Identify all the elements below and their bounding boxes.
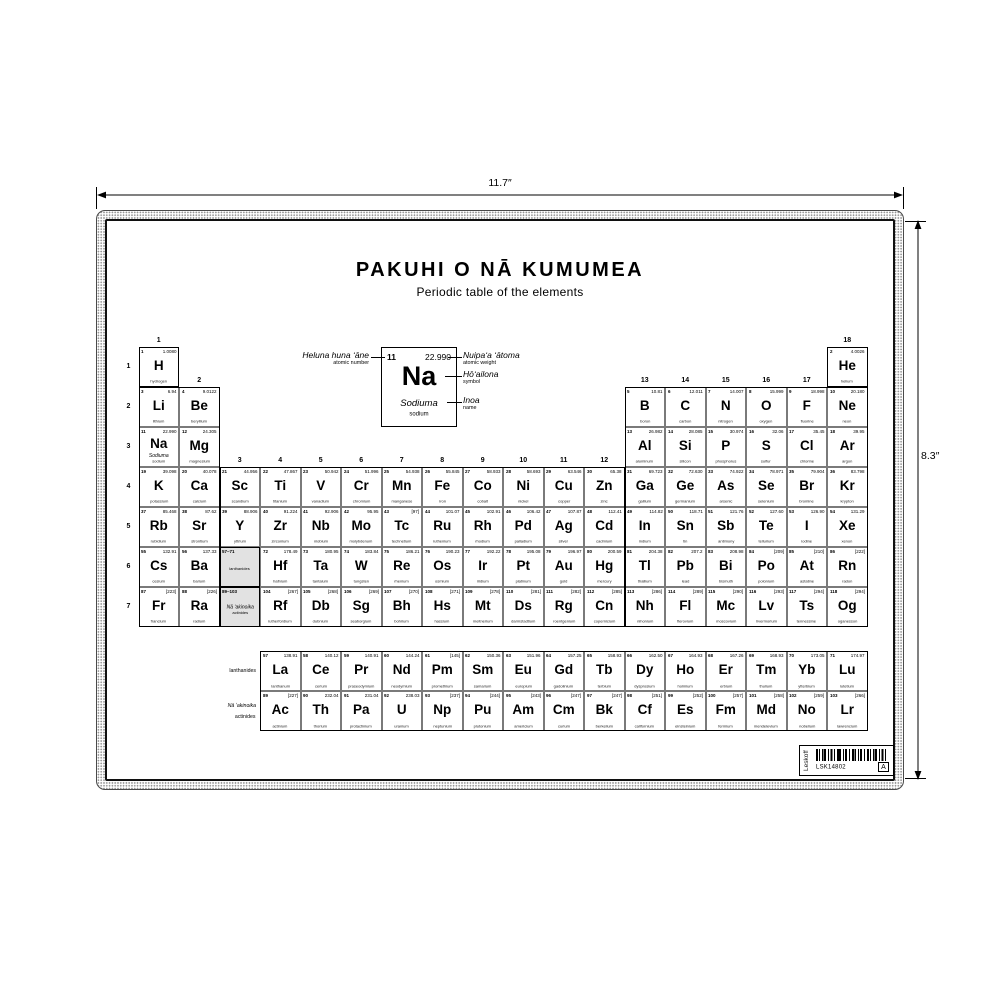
element-cell-At: 85[210]Atastatine (787, 547, 828, 587)
legend-key-box: 11 22.990 Na Sodiuma sodium (381, 347, 457, 427)
element-symbol: Kr (828, 474, 867, 497)
element-cell-Ba: 56137.33Babarium (179, 547, 220, 587)
element-cell-Hs: 108[271]Hshassium (422, 587, 463, 627)
element-cell-Rh: 45102.91Rhrhodium (463, 507, 504, 547)
element-cell-Fr: 87[223]Frfrancium (139, 587, 180, 627)
element-cell-Sb: 51121.76Sbantimony (706, 507, 747, 547)
group-label-4: 4 (260, 457, 301, 464)
element-cell-Sm: 62150.36Smsamarium (463, 651, 504, 691)
element-symbol: Rh (464, 514, 503, 537)
element-cell-Pu: 94[244]Puplutonium (463, 691, 504, 731)
element-name: radon (842, 579, 852, 584)
element-name: niobium (314, 539, 328, 544)
element-cell-B: 510.81Bboron (625, 387, 666, 427)
element-symbol: Zr (261, 514, 300, 537)
element-name: francium (151, 619, 166, 624)
placeholder-range: 89–103 (222, 589, 237, 594)
element-name: zinc (601, 499, 608, 504)
element-symbol: Mg (180, 434, 219, 457)
extension-line-bottom (905, 778, 926, 779)
element-name: tin (683, 539, 687, 544)
element-symbol: Mt (464, 594, 503, 617)
element-name: rutherfordium (268, 619, 292, 624)
element-cell-Og: 118[294]Ogoganesson (827, 587, 868, 627)
element-cell-Bk: 97[247]Bkberkelium (584, 691, 625, 731)
element-name: lutetium (840, 684, 854, 689)
element-cell-Gd: 64157.25Gdgadolinium (544, 651, 585, 691)
element-cell-Li: 36.94Lilithium (139, 387, 180, 427)
group-label-9: 9 (463, 457, 504, 464)
element-cell-Cs: 55132.91Cscesium (139, 547, 180, 587)
element-name: hydrogen (150, 379, 167, 384)
element-symbol: Pd (504, 514, 543, 537)
group-label-16: 16 (746, 377, 787, 384)
element-name: silver (559, 539, 568, 544)
lanthanide-actinide-block: 57138.91Lalanthanum58140.12Cecerium59140… (260, 651, 868, 731)
element-symbol: Mc (707, 594, 746, 617)
element-symbol: Yb (788, 658, 827, 681)
element-name: europium (515, 684, 532, 689)
element-cell-Er: 68167.26Ererbium (706, 651, 747, 691)
element-symbol: V (302, 474, 341, 497)
element-symbol: Fl (666, 594, 705, 617)
element-symbol: Th (302, 698, 341, 721)
element-cell-Ag: 47107.87Agsilver (544, 507, 585, 547)
element-cell-Hg: 80200.59Hgmercury (584, 547, 625, 587)
element-cell-Co: 2758.933Cocobalt (463, 467, 504, 507)
element-cell-Sc: 2144.956Scscandium (220, 467, 261, 507)
group-label-18: 18 (827, 337, 868, 344)
element-name: zirconium (272, 539, 289, 544)
element-cell-Ar: 1839.95Arargon (827, 427, 868, 467)
element-symbol: Tb (585, 658, 624, 681)
element-name: hafnium (273, 579, 287, 584)
element-name: holmium (678, 684, 693, 689)
element-cell-Pb: 82207.2Pblead (665, 547, 706, 587)
element-symbol: Cm (545, 698, 584, 721)
element-name: thulium (760, 684, 773, 689)
element-name: nitrogen (719, 419, 733, 424)
element-symbol: Dy (626, 658, 665, 681)
element-cell-Tb: 65158.93Tbterbium (584, 651, 625, 691)
period-label-1: 1 (123, 363, 135, 370)
element-cell-Ga: 3169.723Gagallium (625, 467, 666, 507)
element-symbol: Fr (140, 594, 179, 617)
element-name: vanadium (312, 499, 329, 504)
element-cell-Re: 75186.21Rerhenium (382, 547, 423, 587)
element-symbol: Au (545, 554, 584, 577)
leader-line-name (447, 402, 462, 403)
element-symbol: Nh (626, 594, 665, 617)
element-cell-Np: 93[237]Npneptunium (422, 691, 463, 731)
element-cell-La: 57138.91Lalanthanum (260, 651, 301, 691)
group-label-6: 6 (341, 457, 382, 464)
element-name: copper (558, 499, 570, 504)
element-name: ytterbium (799, 684, 815, 689)
element-cell-Al: 1326.982Alaluminum (625, 427, 666, 467)
element-symbol: Zn (585, 474, 624, 497)
extension-line-left (96, 187, 97, 209)
element-symbol: Ce (302, 658, 341, 681)
element-name: erbium (720, 684, 732, 689)
lanthanide-row-label: lanthanides (147, 651, 256, 691)
poster-sheet: PAKUHI O NĀ KUMUMEA Periodic table of th… (105, 219, 895, 781)
element-name: neodymium (391, 684, 412, 689)
element-name: gadolinium (554, 684, 573, 689)
element-name: chlorine (800, 459, 814, 464)
element-symbol: Ts (788, 594, 827, 617)
element-name: manganese (391, 499, 412, 504)
element-symbol: Os (423, 554, 462, 577)
element-symbol: La (261, 658, 300, 681)
element-symbol: Ta (302, 554, 341, 577)
element-name: Sodiumasodium (149, 453, 169, 464)
element-cell-Tm: 69168.93Tmthulium (746, 651, 787, 691)
element-name: gallium (638, 499, 651, 504)
element-symbol: Pr (342, 658, 381, 681)
extension-line-top (905, 221, 926, 222)
element-symbol: Sm (464, 658, 503, 681)
element-name: darmstadtium (511, 619, 535, 624)
element-cell-Ti: 2247.867Tititanium (260, 467, 301, 507)
element-cell-P: 1530.974Pphosphorus (706, 427, 747, 467)
element-name: yttrium (234, 539, 246, 544)
element-name: terbium (598, 684, 611, 689)
element-name: promethium (432, 684, 453, 689)
element-name: nickel (518, 499, 528, 504)
element-name: cerium (315, 684, 327, 689)
element-symbol: Y (221, 514, 260, 537)
group-label-11: 11 (544, 457, 585, 464)
element-name: gold (560, 579, 568, 584)
element-name: boron (640, 419, 650, 424)
element-symbol: Ag (545, 514, 584, 537)
element-cell-Na: 1122.990NaSodiumasodium (139, 427, 180, 467)
element-name: antimony (718, 539, 734, 544)
element-cell-Ne: 1020.180Neneon (827, 387, 868, 427)
element-symbol: In (626, 514, 665, 537)
element-cell-Lv: 116[293]Lvlivermorium (746, 587, 787, 627)
element-name: silicon (680, 459, 691, 464)
element-cell-Bi: 83208.98Bibismuth (706, 547, 747, 587)
element-symbol: Db (302, 594, 341, 617)
element-name: polonium (758, 579, 774, 584)
element-symbol: Po (747, 554, 786, 577)
element-name: lithium (153, 419, 165, 424)
element-symbol: Rn (828, 554, 867, 577)
element-name: iodine (801, 539, 812, 544)
element-symbol: Pu (464, 698, 503, 721)
leader-line-number (371, 357, 385, 358)
group-label-13: 13 (625, 377, 666, 384)
element-symbol: Ti (261, 474, 300, 497)
element-cell-Ac: 89[227]Acactinium (260, 691, 301, 731)
leader-line-symbol (445, 376, 462, 377)
element-name: berkelium (596, 724, 613, 729)
element-symbol: C (666, 394, 705, 417)
element-name: hassium (435, 619, 450, 624)
element-cell-I: 53126.90Iiodine (787, 507, 828, 547)
element-symbol: N (707, 394, 746, 417)
placeholder-cell-89–103: 89–103Nā ʻakinoikaactinides (220, 587, 261, 627)
group-label-2: 2 (179, 377, 220, 384)
element-cell-Nh: 113[286]Nhnihonium (625, 587, 666, 627)
element-symbol: Bk (585, 698, 624, 721)
legend-name-hawaiian: Sodiuma (382, 398, 456, 409)
element-symbol: At (788, 554, 827, 577)
element-symbol: Er (707, 658, 746, 681)
element-name: oxygen (760, 419, 773, 424)
element-cell-N: 714.007Nnitrogen (706, 387, 747, 427)
element-name: indium (639, 539, 651, 544)
element-name: thallium (638, 579, 652, 584)
element-symbol: H (140, 354, 179, 377)
element-name: tantalum (313, 579, 328, 584)
element-symbol: Ra (180, 594, 219, 617)
element-name: thorium (314, 724, 327, 729)
element-cell-K: 1939.098Kpotassium (139, 467, 180, 507)
legend-name-english: sodium (395, 410, 444, 417)
element-name: moscovium (716, 619, 736, 624)
element-cell-Tc: 43[97]Tctechnetium (382, 507, 423, 547)
height-dimension-arrow (912, 219, 924, 781)
element-cell-U: 92238.03Uuranium (382, 691, 423, 731)
element-name: ruthenium (433, 539, 451, 544)
element-symbol: Tl (626, 554, 665, 577)
element-name: uranium (395, 724, 409, 729)
element-cell-Ts: 117[294]Tstennessine (787, 587, 828, 627)
element-name: rubidium (151, 539, 166, 544)
element-symbol: Hf (261, 554, 300, 577)
element-name: oganesson (837, 619, 857, 624)
annotation-symbol: Hōʻailona symbol (463, 370, 498, 389)
placeholder-label: Nā ʻakinoikaactinides (226, 604, 253, 616)
element-name: samarium (474, 684, 492, 689)
element-symbol: Fe (423, 474, 462, 497)
barcode (816, 749, 888, 761)
element-name: rhodium (476, 539, 490, 544)
element-cell-Zn: 3065.38Znzinc (584, 467, 625, 507)
element-cell-Es: 99[252]Eseinsteinium (665, 691, 706, 731)
element-symbol: Li (140, 394, 179, 417)
group-label-3: 3 (220, 457, 261, 464)
poster-border: PAKUHI O NĀ KUMUMEA Periodic table of th… (96, 210, 904, 790)
element-symbol: Ba (180, 554, 219, 577)
element-symbol: Nd (383, 658, 422, 681)
element-name: tennessine (797, 619, 816, 624)
element-cell-Cd: 48112.41Cdcadmium (584, 507, 625, 547)
element-cell-Po: 84[209]Popolonium (746, 547, 787, 587)
element-name: potassium (150, 499, 168, 504)
element-name: einsteinium (675, 724, 695, 729)
element-symbol: S (747, 434, 786, 457)
element-name: sulfur (761, 459, 771, 464)
element-cell-Au: 79196.97Augold (544, 547, 585, 587)
element-name: titanium (273, 499, 287, 504)
element-symbol: Ge (666, 474, 705, 497)
element-cell-Kr: 3683.798Krkrypton (827, 467, 868, 507)
element-name: cesium (152, 579, 165, 584)
element-symbol: Ru (423, 514, 462, 537)
element-name: beryllium (191, 419, 207, 424)
element-cell-Nb: 4192.906Nbniobium (301, 507, 342, 547)
element-symbol: Co (464, 474, 503, 497)
group-label-15: 15 (706, 377, 747, 384)
placeholder-label: lanthanides (230, 567, 250, 572)
element-name: mercury (597, 579, 611, 584)
element-symbol: Si (666, 434, 705, 457)
element-cell-Ta: 73180.95Tatantalum (301, 547, 342, 587)
element-name: fermium (719, 724, 733, 729)
element-symbol: Hg (585, 554, 624, 577)
element-cell-O: 815.999Ooxygen (746, 387, 787, 427)
element-name: magnesium (189, 459, 210, 464)
element-name: platinum (516, 579, 531, 584)
element-name: americium (514, 724, 532, 729)
element-cell-Fe: 2655.845Feiron (422, 467, 463, 507)
element-name: chromium (352, 499, 370, 504)
element-name: dysprosium (635, 684, 655, 689)
element-cell-No: 102[259]Nonobelium (787, 691, 828, 731)
element-name: iridium (477, 579, 489, 584)
product-label: Leskoff LSK14802 A (799, 745, 894, 776)
element-symbol: Br (788, 474, 827, 497)
group-label-7: 7 (382, 457, 423, 464)
period-label-6: 6 (123, 563, 135, 570)
element-cell-Os: 76190.23Ososmium (422, 547, 463, 587)
element-symbol: Am (504, 698, 543, 721)
element-name: germanium (675, 499, 695, 504)
element-cell-Ho: 67164.93Hoholmium (665, 651, 706, 691)
element-symbol: He (828, 354, 867, 377)
element-cell-Y: 3988.906Yyttrium (220, 507, 261, 547)
element-symbol: Pt (504, 554, 543, 577)
element-symbol: K (140, 474, 179, 497)
element-name: praseodymium (348, 684, 374, 689)
element-symbol: Se (747, 474, 786, 497)
element-cell-Mg: 1224.305Mgmagnesium (179, 427, 220, 467)
periodic-table: 11.0080Hhydrogen24.0026Hehelium36.94Lili… (139, 347, 868, 627)
group-label-8: 8 (422, 457, 463, 464)
element-cell-Hf: 72178.49Hfhafnium (260, 547, 301, 587)
period-label-4: 4 (123, 483, 135, 490)
element-cell-Sn: 50118.71Sntin (665, 507, 706, 547)
poster-mockup-page: 11.7″ 8.3″ PAKUHI O NĀ KUMUMEA Periodic … (0, 0, 1000, 1000)
element-cell-Sg: 106[269]Sgseaborgium (341, 587, 382, 627)
element-cell-Pt: 78195.08Ptplatinum (503, 547, 544, 587)
group-label-10: 10 (503, 457, 544, 464)
element-cell-Pd: 46106.42Pdpalladium (503, 507, 544, 547)
element-name: nihonium (637, 619, 653, 624)
element-symbol: Rf (261, 594, 300, 617)
placeholder-range: 57–71 (222, 549, 235, 554)
element-name: curium (558, 724, 570, 729)
element-symbol: Bh (383, 594, 422, 617)
element-symbol: Te (747, 514, 786, 537)
period-label-2: 2 (123, 403, 135, 410)
element-symbol: O (747, 394, 786, 417)
element-symbol: Cd (585, 514, 624, 537)
element-name: bismuth (719, 579, 733, 584)
element-name: carbon (679, 419, 691, 424)
element-cell-Cf: 98[251]Cfcalifornium (625, 691, 666, 731)
element-symbol: Ar (828, 434, 867, 457)
element-cell-Ca: 2040.078Cacalcium (179, 467, 220, 507)
period-label-5: 5 (123, 523, 135, 530)
element-symbol: Pm (423, 658, 462, 681)
element-name: krypton (841, 499, 854, 504)
element-symbol: Lv (747, 594, 786, 617)
element-symbol: I (788, 514, 827, 537)
element-cell-Fl: 114[289]Flflerovium (665, 587, 706, 627)
element-cell-Rg: 111[282]Rgroentgenium (544, 587, 585, 627)
element-cell-Cn: 112[285]Cncopernicium (584, 587, 625, 627)
element-name: phosphorus (715, 459, 736, 464)
element-symbol: Eu (504, 658, 543, 681)
element-symbol: Ca (180, 474, 219, 497)
element-name: seaborgium (351, 619, 372, 624)
element-cell-Dy: 66162.50Dydysprosium (625, 651, 666, 691)
element-symbol: Cu (545, 474, 584, 497)
element-cell-Tl: 81204.38Tlthallium (625, 547, 666, 587)
element-name: scandium (231, 499, 248, 504)
element-symbol: Rb (140, 514, 179, 537)
element-cell-Te: 52127.60Tetellurium (746, 507, 787, 547)
element-name: tellurium (759, 539, 774, 544)
element-symbol: F (788, 394, 827, 417)
element-cell-Zr: 4091.224Zrzirconium (260, 507, 301, 547)
element-symbol: W (342, 554, 381, 577)
element-name: radium (193, 619, 205, 624)
element-cell-Cr: 2451.996Crchromium (341, 467, 382, 507)
period-label-7: 7 (123, 603, 135, 610)
element-symbol: P (707, 434, 746, 457)
element-symbol: Rg (545, 594, 584, 617)
element-cell-Br: 3579.904Brbromine (787, 467, 828, 507)
element-cell-Cm: 96[247]Cmcurium (544, 691, 585, 731)
element-symbol: Sn (666, 514, 705, 537)
element-symbol: Bi (707, 554, 746, 577)
group-label-12: 12 (584, 457, 625, 464)
element-symbol: Hs (423, 594, 462, 617)
element-symbol: Sc (221, 474, 260, 497)
element-name: lanthanum (271, 684, 290, 689)
element-cell-Mc: 115[290]Mcmoscovium (706, 587, 747, 627)
element-name: lawrencium (837, 724, 857, 729)
element-name: helium (841, 379, 853, 384)
element-cell-C: 612.011Ccarbon (665, 387, 706, 427)
element-name: xenon (842, 539, 853, 544)
group-label-14: 14 (665, 377, 706, 384)
element-cell-Ds: 110[281]Dsdarmstadtium (503, 587, 544, 627)
element-name: lead (681, 579, 689, 584)
annotation-name: Inoa name (463, 396, 486, 415)
element-cell-Se: 3478.971Seselenium (746, 467, 787, 507)
element-name: cobalt (477, 499, 488, 504)
element-cell-Be: 49.0122Beberyllium (179, 387, 220, 427)
element-cell-Ir: 77192.22Iriridium (463, 547, 504, 587)
element-symbol: Pa (342, 698, 381, 721)
element-cell-Mt: 109[278]Mtmeitnerium (463, 587, 504, 627)
element-symbol: Md (747, 698, 786, 721)
annotation-atomic-weight: Nuipaʻa ʻātoma atomic weight (463, 351, 520, 370)
element-cell-Mo: 4295.95Momolybdenum (341, 507, 382, 547)
element-name: cadmium (596, 539, 612, 544)
element-symbol: Tc (383, 514, 422, 537)
element-symbol: Ni (504, 474, 543, 497)
element-symbol: Gd (545, 658, 584, 681)
group-label-17: 17 (787, 377, 828, 384)
